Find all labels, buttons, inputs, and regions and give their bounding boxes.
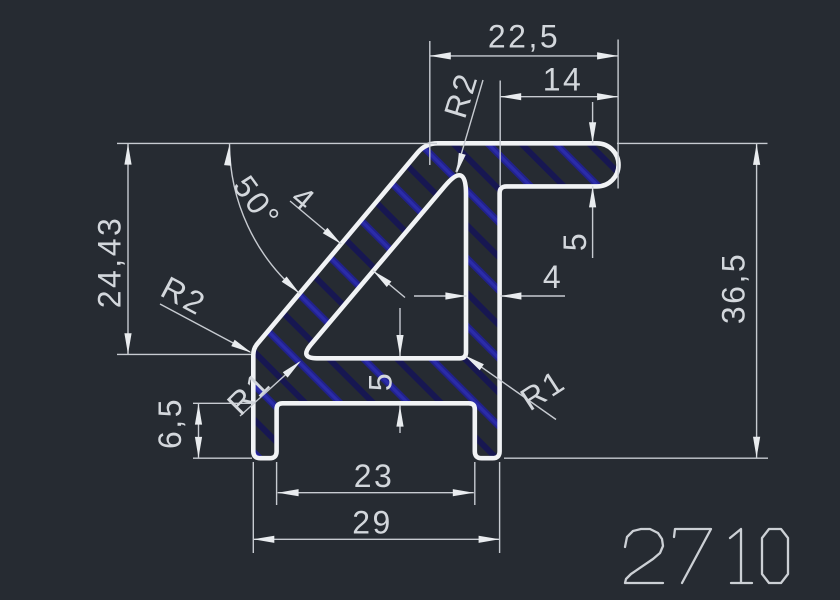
svg-text:4: 4 xyxy=(543,259,563,295)
svg-text:6,5: 6,5 xyxy=(152,397,188,449)
svg-text:5: 5 xyxy=(363,371,399,391)
svg-text:14: 14 xyxy=(543,62,584,98)
svg-text:23: 23 xyxy=(354,458,395,494)
svg-text:5: 5 xyxy=(557,231,593,251)
svg-text:22,5: 22,5 xyxy=(488,19,560,55)
svg-text:29: 29 xyxy=(352,505,393,541)
svg-text:36,5: 36,5 xyxy=(716,252,752,324)
svg-text:24,43: 24,43 xyxy=(92,216,128,309)
